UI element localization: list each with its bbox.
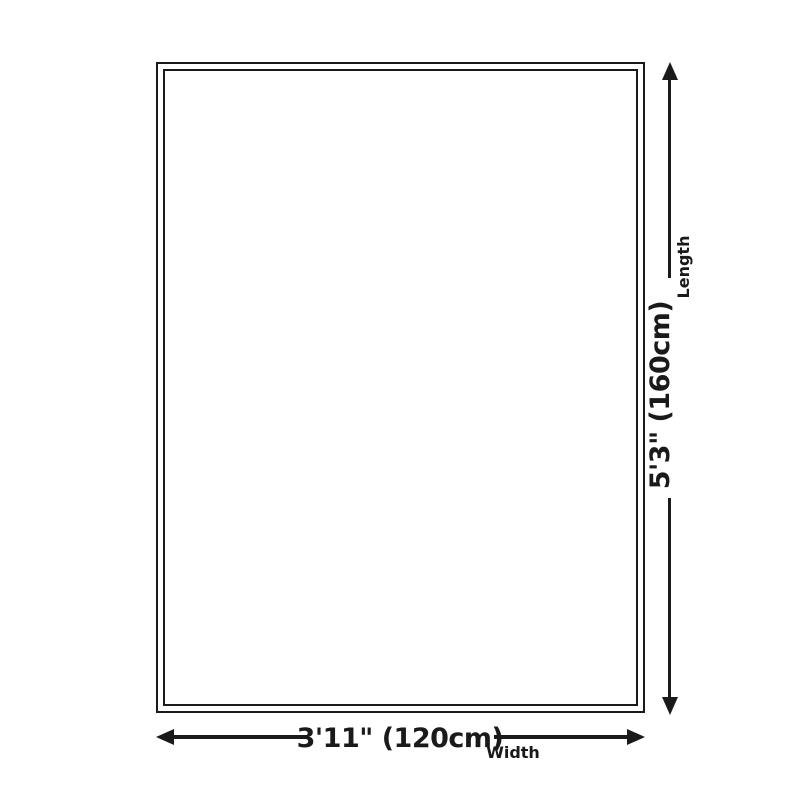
width-label: Width: [483, 744, 543, 762]
rug-outline-outer: [156, 62, 645, 713]
length-label: Length: [675, 232, 693, 302]
length-dimension-line-top: [668, 78, 671, 278]
arrow-right-icon: [627, 729, 645, 745]
dimension-diagram: Length 5'3" (160cm) 3'11" (120cm) Width: [0, 0, 800, 800]
length-dimension-line-bottom: [668, 498, 671, 698]
length-value: 5'3" (160cm): [646, 285, 676, 505]
rug-outline-inner: [163, 69, 638, 706]
width-dimension-line-right: [494, 735, 627, 739]
width-value: 3'11" (120cm): [290, 724, 510, 754]
width-dimension-line-left: [172, 735, 307, 739]
arrow-down-icon: [662, 697, 678, 715]
